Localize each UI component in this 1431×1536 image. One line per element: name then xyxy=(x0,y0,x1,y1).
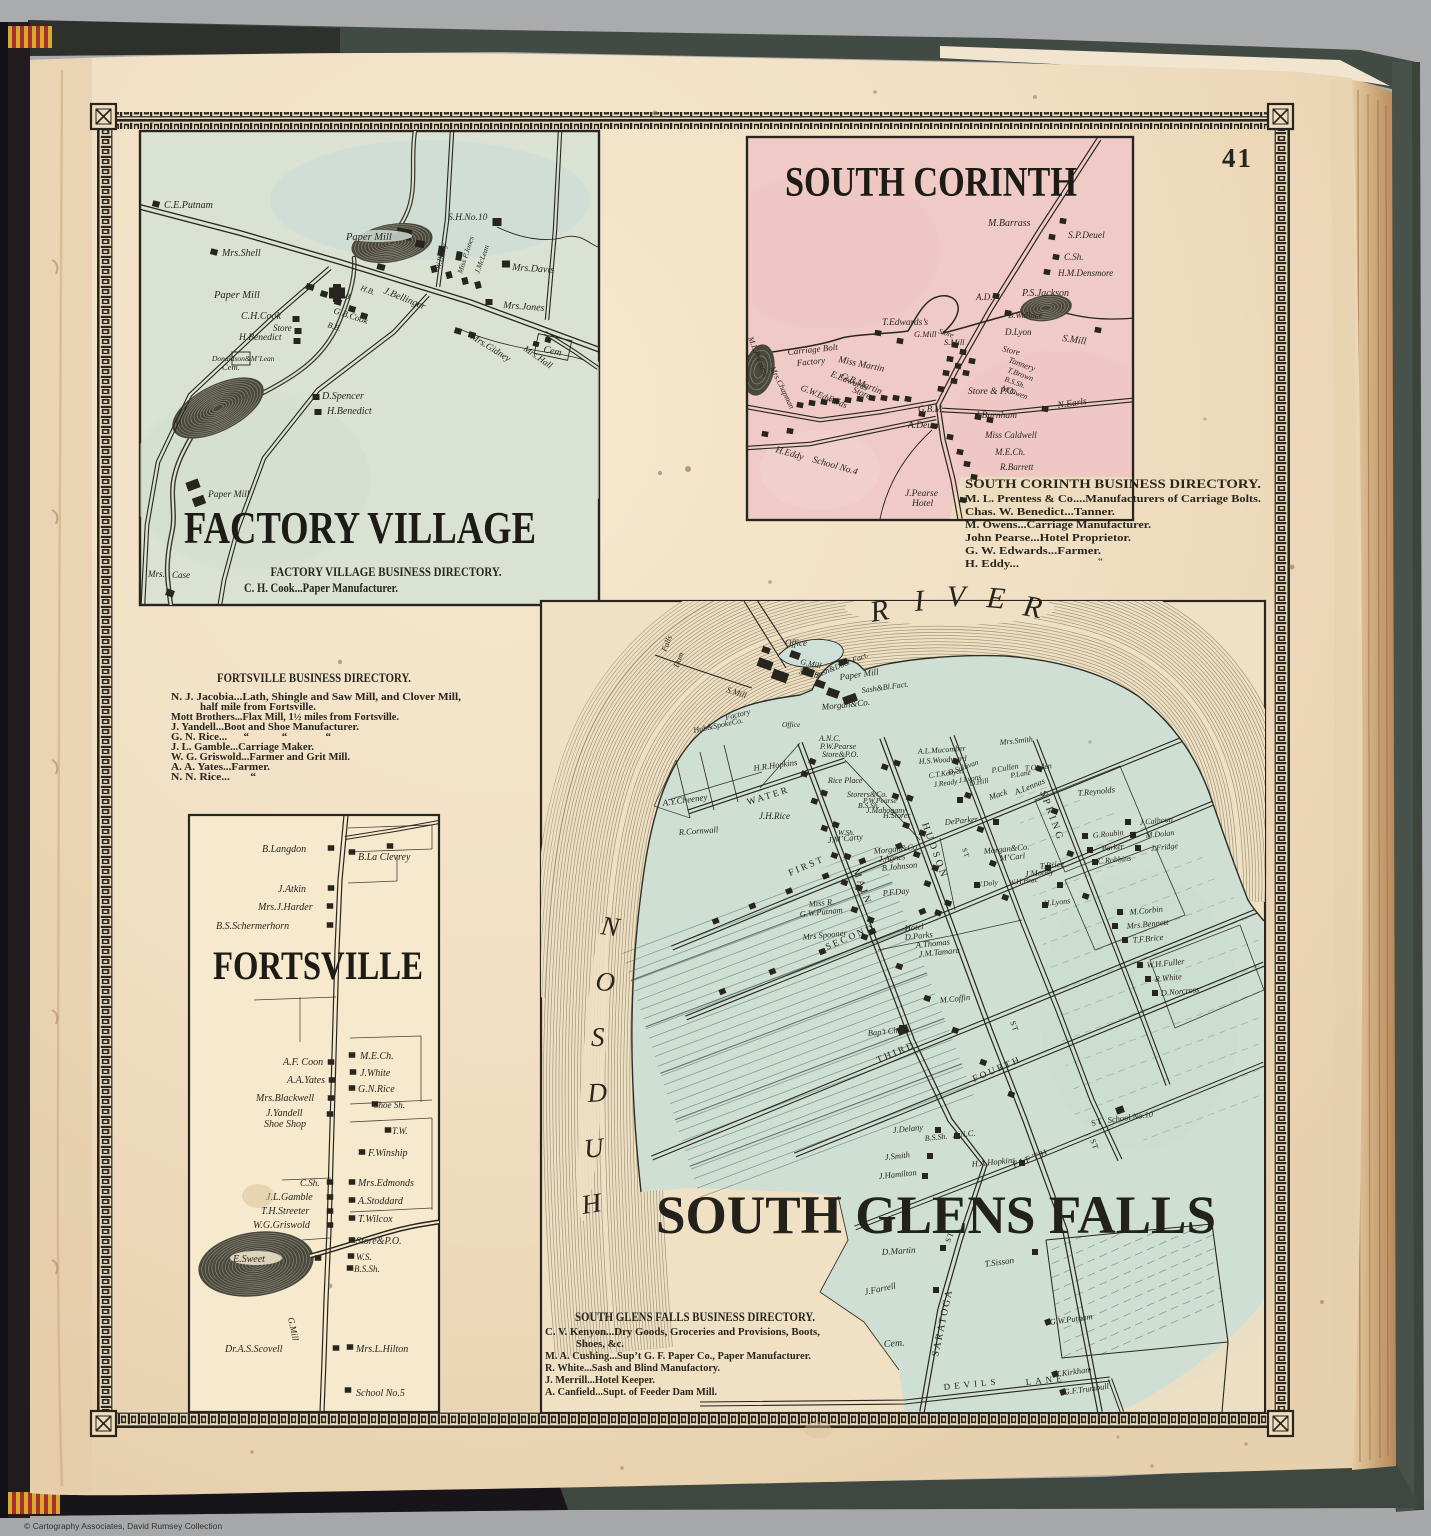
svg-text:Mrs.: Mrs. xyxy=(147,569,165,579)
svg-text:School No.5: School No.5 xyxy=(356,1388,405,1399)
svg-text:O: O xyxy=(595,966,617,997)
svg-text:SOUTH GLENS FALLS: SOUTH GLENS FALLS xyxy=(656,1185,1216,1245)
svg-text:Mrs.Shell: Mrs.Shell xyxy=(221,248,261,259)
svg-text:E: E xyxy=(984,581,1006,616)
svg-text:A. Canfield...Supt. of Feeder: A. Canfield...Supt. of Feeder Dam Mill. xyxy=(545,1387,717,1398)
svg-text:Hotel: Hotel xyxy=(911,499,933,509)
svg-text:C.H.Cook: C.H.Cook xyxy=(241,311,282,322)
svg-text:Shoe Shop: Shoe Shop xyxy=(264,1119,306,1130)
svg-text:FORTSVILLE: FORTSVILLE xyxy=(213,943,423,988)
svg-text:Store&P.O.: Store&P.O. xyxy=(822,750,858,759)
svg-text:S.H.No.10: S.H.No.10 xyxy=(448,213,488,223)
svg-text:Donaldson&M’Lean: Donaldson&M’Lean xyxy=(211,354,275,363)
svg-text:Mrs.Blackwell: Mrs.Blackwell xyxy=(255,1093,314,1104)
svg-text:F.Winship: F.Winship xyxy=(367,1148,408,1159)
svg-text:J.White: J.White xyxy=(360,1068,391,1079)
svg-text:© Cartography Associates, Davi: © Cartography Associates, David Rumsey C… xyxy=(24,1521,222,1531)
svg-text:Shoe Sh.: Shoe Sh. xyxy=(374,1100,405,1110)
svg-text:M.Barrass: M.Barrass xyxy=(987,218,1031,229)
svg-text:A.D.: A.D. xyxy=(975,292,993,302)
svg-text:Office: Office xyxy=(782,720,801,729)
svg-text:T.H.Streeter: T.H.Streeter xyxy=(261,1206,309,1217)
svg-text:Cem.: Cem. xyxy=(222,362,240,372)
svg-text:Miss Caldwell: Miss Caldwell xyxy=(984,430,1037,440)
svg-text:“: “ xyxy=(1098,556,1103,568)
svg-text:D: D xyxy=(586,1077,609,1108)
svg-text:Shoes, &c.: Shoes, &c. xyxy=(576,1339,624,1350)
svg-text:T.W.: T.W. xyxy=(392,1126,408,1136)
svg-text:H.M.Densmore: H.M.Densmore xyxy=(1057,268,1113,278)
svg-text:A.F. Coon: A.F. Coon xyxy=(282,1057,323,1068)
svg-text:J.Yandell: J.Yandell xyxy=(266,1108,303,1119)
svg-text:B.La Clevrey: B.La Clevrey xyxy=(358,852,411,863)
svg-text:A.Deuel: A.Deuel xyxy=(907,421,939,431)
svg-text:Paper Mill: Paper Mill xyxy=(207,490,250,500)
svg-text:41: 41 xyxy=(1222,143,1253,173)
svg-text:SOUTH GLENS FALLS BUSINESS DIR: SOUTH GLENS FALLS BUSINESS DIRECTORY. xyxy=(575,1310,815,1324)
svg-text:Chas. W. Benedict...Tanner.: Chas. W. Benedict...Tanner. xyxy=(965,506,1115,518)
svg-text:E.Sweet: E.Sweet xyxy=(232,1254,265,1265)
svg-text:H.Benedict: H.Benedict xyxy=(238,333,282,343)
svg-text:J.Pearse: J.Pearse xyxy=(905,489,938,499)
svg-text:R. White...Sash and Blind Manu: R. White...Sash and Blind Manufactory. xyxy=(545,1363,720,1374)
svg-text:P.S.Jackson: P.S.Jackson xyxy=(1021,288,1069,299)
svg-text:FORTSVILLE BUSINESS DIRECTORY.: FORTSVILLE BUSINESS DIRECTORY. xyxy=(217,671,411,685)
svg-text:C. H. Cook...Paper Manufacture: C. H. Cook...Paper Manufacturer. xyxy=(244,581,398,595)
svg-text:Office: Office xyxy=(785,638,807,648)
svg-text:B.S.Schermerhorn: B.S.Schermerhorn xyxy=(216,921,289,932)
svg-text:FACTORY VILLAGE BUSINESS DIREC: FACTORY VILLAGE BUSINESS DIRECTORY. xyxy=(271,564,502,579)
svg-text:FACTORY VILLAGE: FACTORY VILLAGE xyxy=(184,502,536,553)
svg-text:S: S xyxy=(591,1022,605,1052)
svg-text:SOUTH CORINTH BUSINESS DIRECTO: SOUTH CORINTH BUSINESS DIRECTORY. xyxy=(965,476,1261,491)
svg-text:Dr.A.S.Scovell: Dr.A.S.Scovell xyxy=(224,1344,283,1355)
svg-text:Cem.: Cem. xyxy=(883,1338,905,1350)
svg-text:Store & P.O.: Store & P.O. xyxy=(968,387,1016,397)
svg-text:M. A. Cushing...Sup’t G. F. Pa: M. A. Cushing...Sup’t G. F. Paper Co., P… xyxy=(545,1351,811,1362)
svg-text:A.A.Yates: A.A.Yates xyxy=(286,1075,325,1086)
svg-text:D.Lyon: D.Lyon xyxy=(1004,327,1032,337)
svg-text:C.E.Putnam: C.E.Putnam xyxy=(164,200,213,211)
svg-text:S.P.Deuel: S.P.Deuel xyxy=(1068,231,1105,241)
svg-text:W.G.Griswold: W.G.Griswold xyxy=(253,1220,311,1231)
svg-text:Store&P.O.: Store&P.O. xyxy=(356,1236,402,1247)
svg-text:Mrs.J.Harder: Mrs.J.Harder xyxy=(257,902,313,913)
svg-text:B.Langdon: B.Langdon xyxy=(262,844,306,855)
svg-text:J.Atkin: J.Atkin xyxy=(278,884,306,895)
svg-text:John Pearse...Hotel Proprietor: John Pearse...Hotel Proprietor. xyxy=(965,532,1131,544)
svg-text:S.Mill: S.Mill xyxy=(944,337,965,347)
svg-text:T.Edwards’s: T.Edwards’s xyxy=(882,318,928,328)
svg-text:H. Eddy...: H. Eddy... xyxy=(965,558,1019,570)
svg-text:J.Burnham: J.Burnham xyxy=(975,411,1017,421)
svg-text:H.Storer: H.Storer xyxy=(882,811,911,820)
svg-text:J. Merrill...Hotel Keeper.: J. Merrill...Hotel Keeper. xyxy=(545,1375,655,1386)
svg-text:C.Sh.: C.Sh. xyxy=(300,1178,320,1188)
svg-text:C.Sh.: C.Sh. xyxy=(1064,252,1084,262)
svg-text:Paper Mill: Paper Mill xyxy=(345,232,392,243)
svg-text:Mrs.Edmonds: Mrs.Edmonds xyxy=(357,1178,414,1189)
svg-text:B.S.Sh.: B.S.Sh. xyxy=(354,1264,380,1274)
svg-text:G.B.M.: G.B.M. xyxy=(918,404,944,414)
svg-text:B.Wallace: B.Wallace xyxy=(1008,310,1043,320)
svg-text:G.N.Rice: G.N.Rice xyxy=(358,1084,395,1095)
svg-text:M.E.Ch.: M.E.Ch. xyxy=(994,447,1025,457)
svg-text:W.S.: W.S. xyxy=(356,1252,372,1262)
svg-text:T.Wilcox: T.Wilcox xyxy=(358,1214,393,1225)
svg-text:Rice Place: Rice Place xyxy=(827,776,863,785)
svg-text:R.Barrett: R.Barrett xyxy=(999,462,1034,472)
svg-text:G.Mill: G.Mill xyxy=(914,329,937,339)
svg-text:J.H.Rice: J.H.Rice xyxy=(759,811,790,821)
svg-text:M. L. Prentess & Co....Manufac: M. L. Prentess & Co....Manufacturers of … xyxy=(965,493,1261,505)
svg-text:Store: Store xyxy=(273,323,292,333)
svg-text:N. N. Rice... “: N. N. Rice... “ xyxy=(171,772,256,783)
svg-text:C. V. Kenyon...Dry Goods, Groc: C. V. Kenyon...Dry Goods, Groceries and … xyxy=(545,1327,820,1338)
svg-text:Case: Case xyxy=(172,570,190,580)
svg-text:A.Stoddard: A.Stoddard xyxy=(357,1196,404,1207)
svg-text:G. W. Edwards...Farmer.: G. W. Edwards...Farmer. xyxy=(965,545,1101,557)
svg-text:Mrs.L.Hilton: Mrs.L.Hilton xyxy=(355,1344,408,1355)
svg-text:SOUTH CORINTH: SOUTH CORINTH xyxy=(785,160,1077,206)
svg-text:Paper Mill: Paper Mill xyxy=(213,290,260,301)
svg-text:M.E.Ch.: M.E.Ch. xyxy=(359,1051,394,1062)
svg-text:H.Benedict: H.Benedict xyxy=(326,406,372,417)
svg-text:D.Spencer: D.Spencer xyxy=(321,391,364,402)
